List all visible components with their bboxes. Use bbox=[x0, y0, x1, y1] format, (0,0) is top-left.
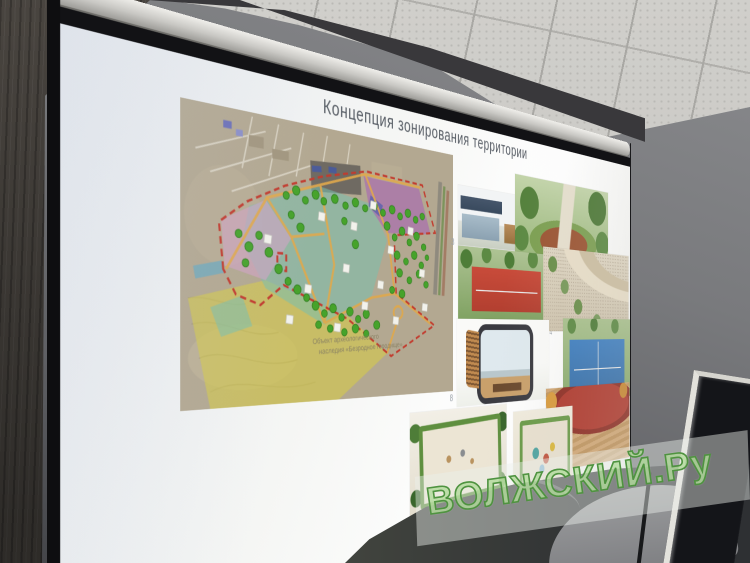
thumb-number: 3 bbox=[451, 237, 455, 248]
thumb-sports-field-red: 4 bbox=[458, 245, 551, 324]
photo-of-projection-screen: Концепция зонирования территории bbox=[0, 0, 750, 563]
zoning-map: Объект археологического наследия «Безрод… bbox=[180, 97, 453, 411]
thumb-cube-pavilion: 8 bbox=[457, 319, 549, 407]
thumb-number: 8 bbox=[450, 394, 454, 405]
